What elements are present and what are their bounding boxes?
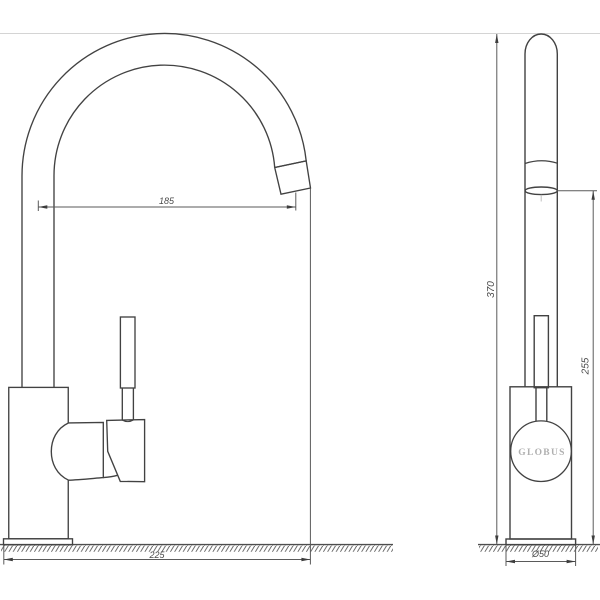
svg-text:GLOBUS: GLOBUS bbox=[518, 448, 565, 458]
svg-text:185: 185 bbox=[159, 196, 175, 206]
svg-text:Ø50: Ø50 bbox=[531, 549, 549, 559]
svg-text:255: 255 bbox=[581, 357, 592, 375]
svg-text:225: 225 bbox=[148, 550, 165, 560]
svg-text:370: 370 bbox=[486, 281, 497, 298]
